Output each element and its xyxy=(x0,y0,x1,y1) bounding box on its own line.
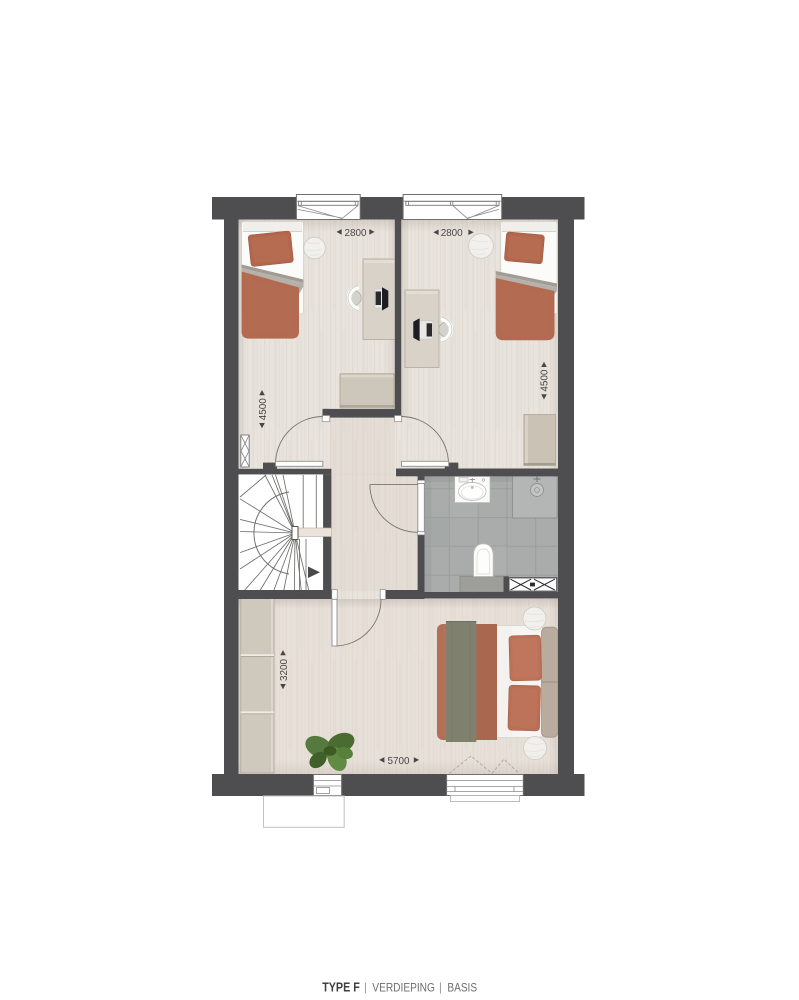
svg-text:TYPE F: TYPE F xyxy=(322,981,360,995)
svg-text:VERDIEPING: VERDIEPING xyxy=(372,981,435,995)
svg-text:4500: 4500 xyxy=(540,369,551,391)
svg-text:3200: 3200 xyxy=(279,659,290,681)
svg-text:|: | xyxy=(364,980,367,994)
svg-text:BASIS: BASIS xyxy=(447,981,477,995)
svg-text:2800: 2800 xyxy=(441,228,463,239)
svg-text:2800: 2800 xyxy=(345,228,367,239)
svg-text:5700: 5700 xyxy=(388,756,410,767)
svg-text:|: | xyxy=(439,980,442,994)
svg-text:4500: 4500 xyxy=(258,398,269,420)
